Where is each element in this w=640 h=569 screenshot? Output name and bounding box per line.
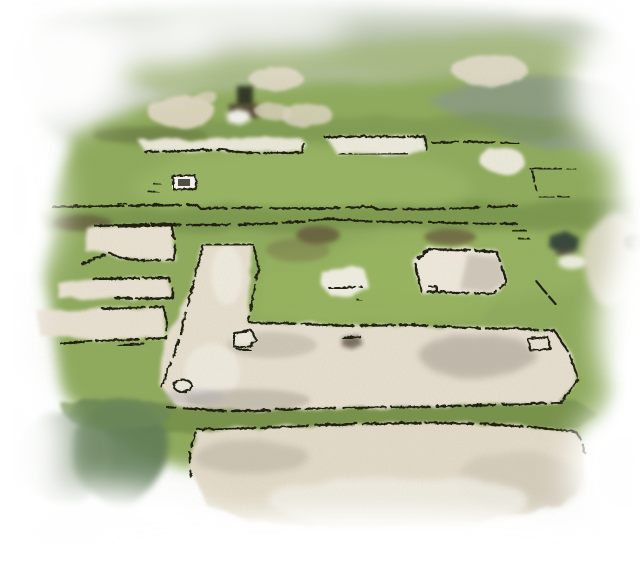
vignette-top-center (160, 4, 350, 48)
scene-canvas (0, 0, 640, 569)
scene-layers (0, 0, 640, 569)
watercolor-aerial-view (0, 0, 640, 569)
